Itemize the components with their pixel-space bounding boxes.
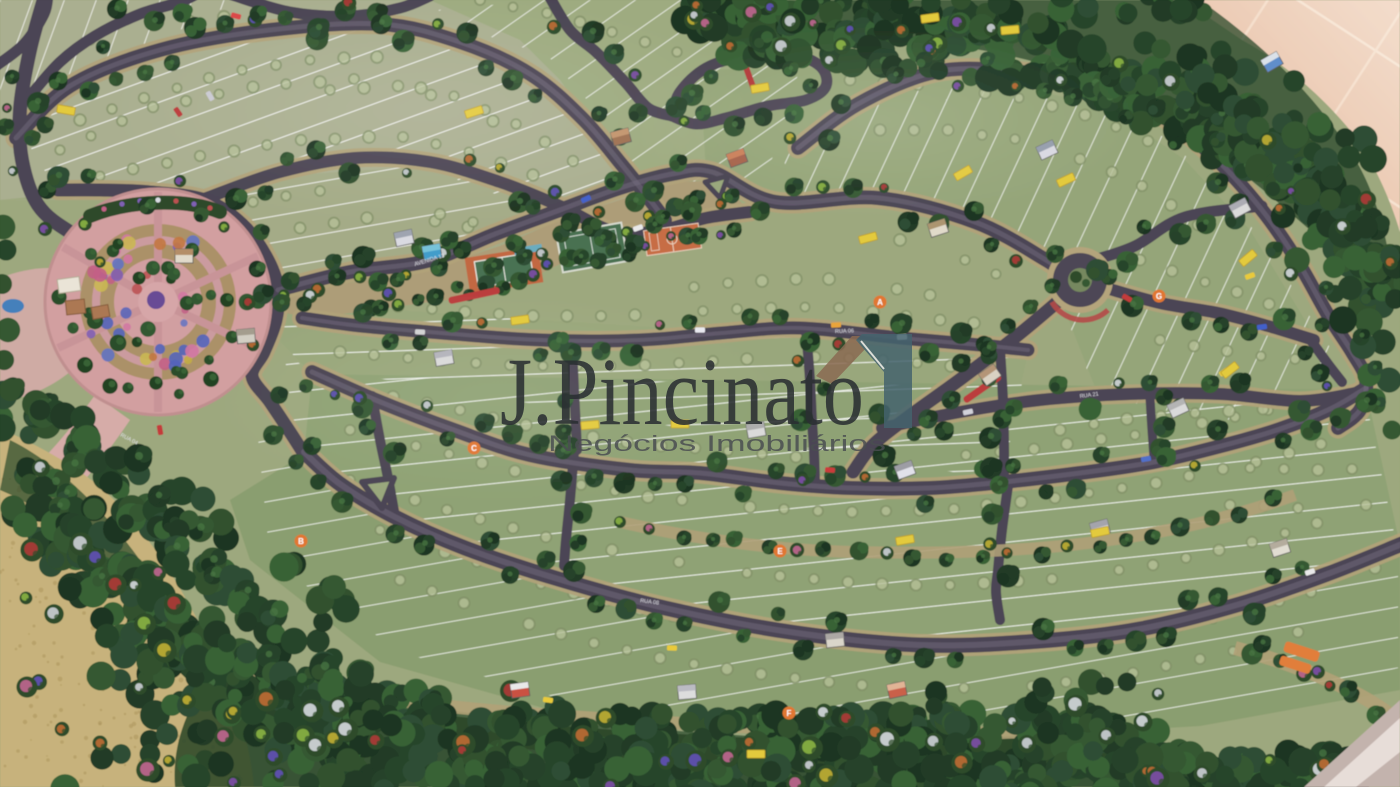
svg-text:J.Pincinato: J.Pincinato: [500, 338, 864, 445]
svg-text:Negócios Imobiliários: Negócios Imobiliários: [548, 431, 886, 456]
